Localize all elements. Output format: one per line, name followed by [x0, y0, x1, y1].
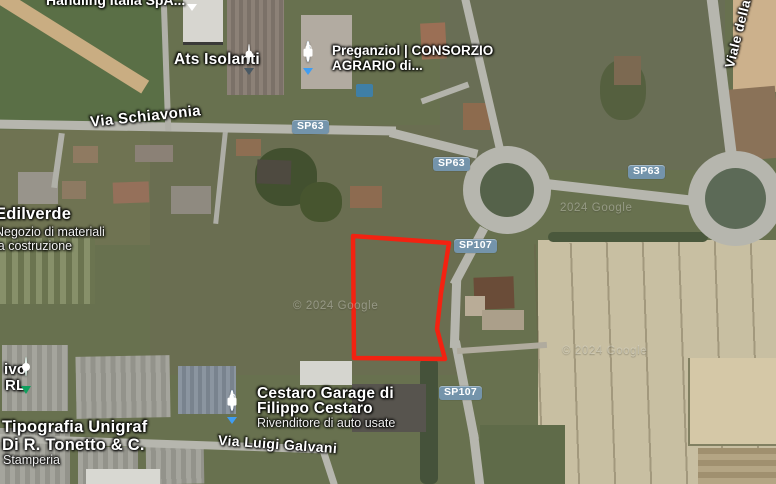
- route-badge-sp63: SP63: [292, 120, 329, 134]
- pin-tail: [21, 386, 31, 394]
- poi-pin-ats[interactable]: [248, 45, 250, 63]
- route-badge-sp63: SP63: [628, 165, 665, 179]
- pin-tail: [244, 68, 254, 75]
- poi-label-cestaro-sub[interactable]: Rivenditore di auto usate: [257, 416, 395, 430]
- poi-label-preganziol-1[interactable]: Preganziol | CONSORZIO: [332, 43, 493, 58]
- route-badge-sp63: SP63: [433, 157, 470, 171]
- pin-tail: [187, 4, 197, 11]
- road-label-galvani: Via Luigi Galvani: [218, 432, 338, 456]
- satellite-map[interactable]: Handling Italia SpA... Ats Isolanti Preg…: [0, 0, 776, 484]
- pin-tail: [303, 68, 313, 75]
- pin-dot: [22, 363, 30, 371]
- poi-label-edilverde[interactable]: Edilverde: [0, 205, 71, 224]
- route-badge-sp107: SP107: [454, 239, 497, 253]
- google-watermark: 2024 Google: [560, 202, 632, 214]
- poi-label-edilverde-sub1[interactable]: Negozio di materiali: [0, 225, 105, 239]
- poi-pin-cestaro[interactable]: [230, 392, 234, 410]
- poi-label-edilverde-sub2[interactable]: la costruzione: [0, 239, 72, 253]
- pin-circle: [248, 44, 250, 63]
- labels-layer: Handling Italia SpA... Ats Isolanti Preg…: [0, 0, 776, 484]
- pin-circle: [306, 41, 310, 62]
- poi-label-preganziol-2[interactable]: AGRARIO di...: [332, 58, 423, 73]
- pin-dot: [246, 50, 253, 57]
- google-watermark: © 2024 Google: [562, 345, 647, 357]
- route-badge-sp107: SP107: [439, 386, 482, 400]
- shopping-bag-icon: [228, 397, 237, 405]
- road-label-schiavonia: Via Schiavonia: [89, 102, 201, 131]
- pin-circle: [25, 357, 27, 376]
- google-watermark: © 2024 Google: [293, 300, 378, 312]
- poi-label-tipografia-sub[interactable]: Stamperia: [3, 453, 60, 467]
- pin-tail: [227, 417, 237, 424]
- road-label-viale: Viale della...: [722, 0, 757, 70]
- poi-pin-preganziol[interactable]: [306, 43, 310, 61]
- poi-label-handling[interactable]: Handling Italia SpA...: [46, 0, 185, 8]
- poi-label-tipografia-1[interactable]: Tipografia Unigraf: [2, 418, 147, 437]
- poi-pin-ivo[interactable]: [25, 358, 27, 376]
- pin-circle: [230, 390, 234, 411]
- shopping-bag-icon: [304, 48, 313, 56]
